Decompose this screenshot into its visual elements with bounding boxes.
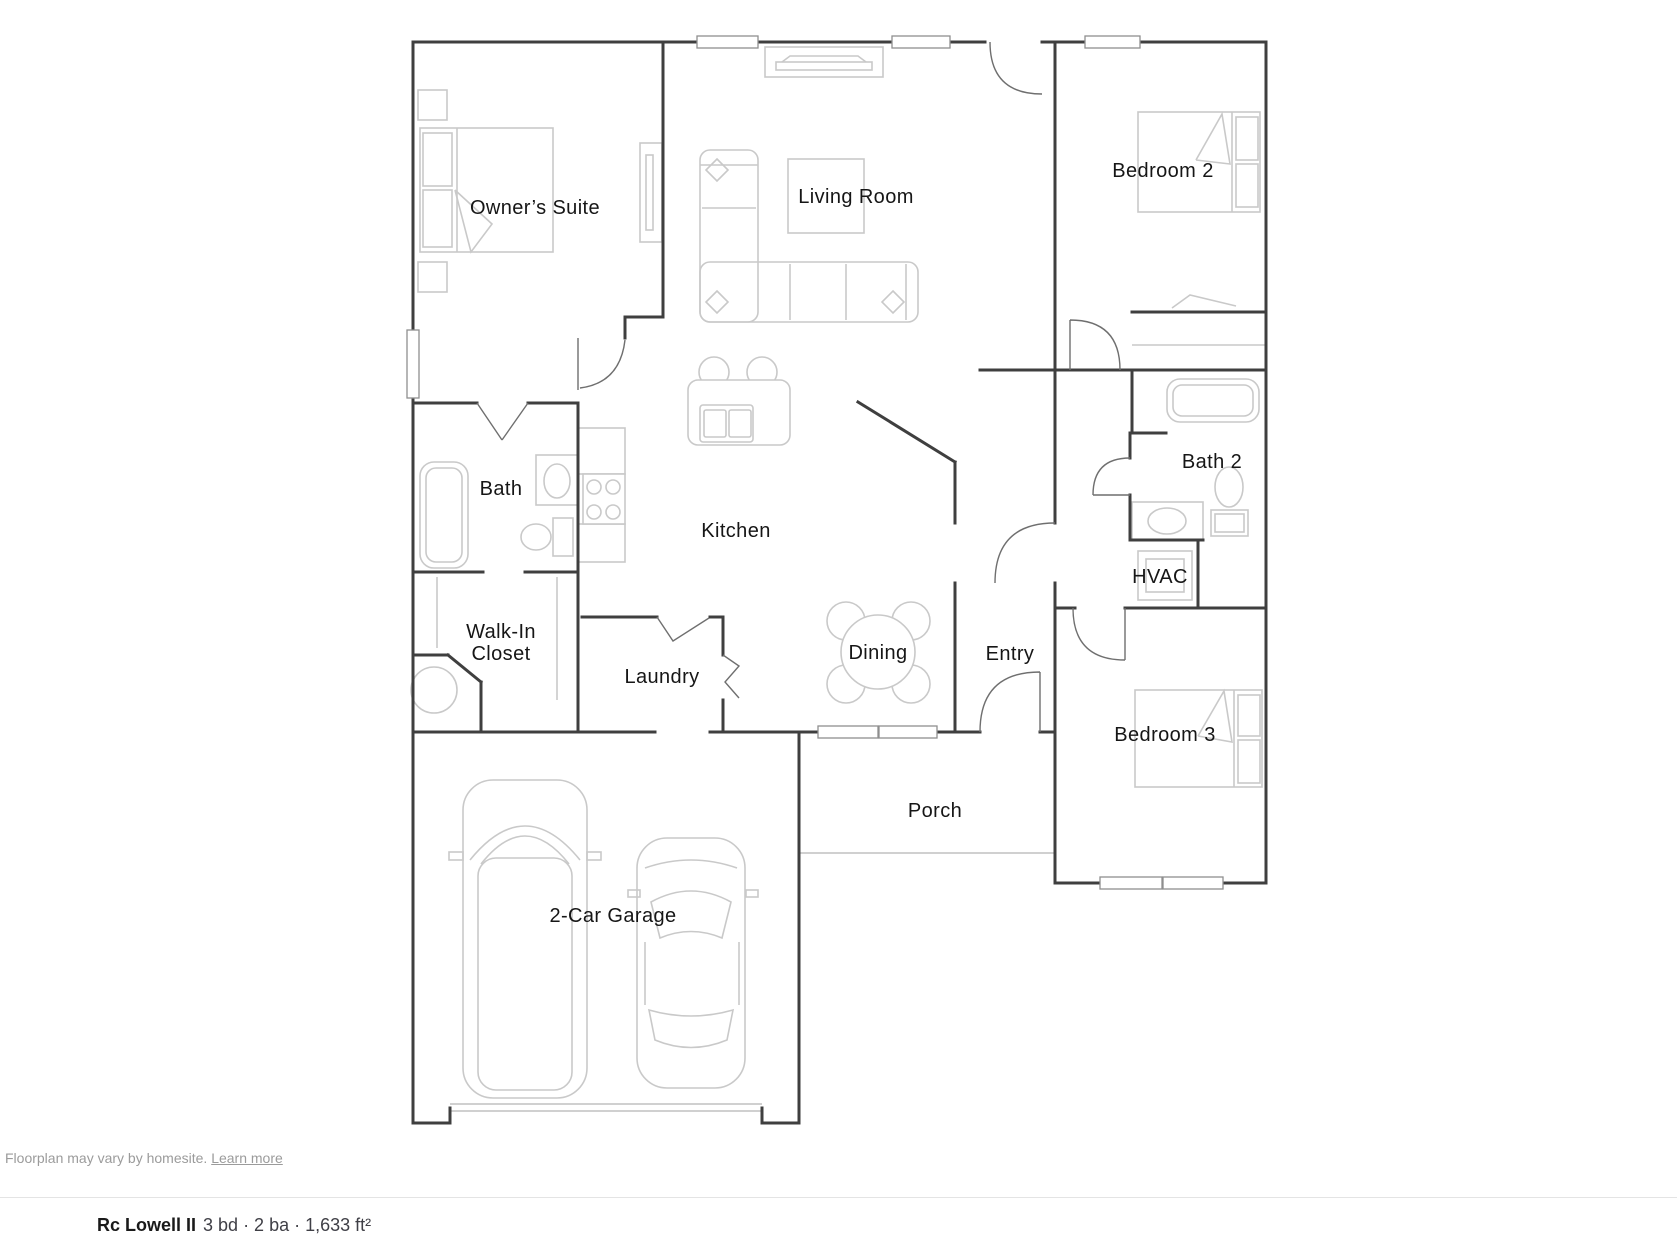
dresser bbox=[640, 143, 662, 242]
plan-details: 3 bd · 2 ba · 1,633 ft² bbox=[203, 1215, 371, 1236]
front-door bbox=[980, 672, 1040, 732]
toilet2 bbox=[1211, 467, 1248, 536]
bedroom2-door bbox=[1070, 320, 1120, 370]
garage-door bbox=[450, 1104, 762, 1111]
bath2-door bbox=[1093, 458, 1130, 495]
laundry-bifold-door bbox=[657, 617, 709, 641]
window bbox=[697, 36, 758, 48]
floorplan-page: Owner’s Suite Living Room Bedroom 2 Bath… bbox=[0, 0, 1677, 1251]
window bbox=[879, 726, 937, 738]
vanity-sink bbox=[411, 667, 457, 713]
room-label-kitchen: Kitchen bbox=[701, 520, 771, 542]
light-lines bbox=[450, 853, 1055, 1111]
bath-door bbox=[477, 403, 528, 440]
bath2-sink bbox=[1132, 502, 1203, 540]
sectional-sofa bbox=[700, 150, 918, 322]
window bbox=[1085, 36, 1140, 48]
window bbox=[1163, 877, 1223, 889]
closet-rod-mark bbox=[1172, 295, 1236, 308]
room-label-dining: Dining bbox=[848, 642, 907, 664]
tv-console bbox=[765, 47, 883, 77]
window bbox=[818, 726, 878, 738]
laundry-pocket-door bbox=[723, 655, 739, 698]
plan-summary-bar: Rc Lowell II 3 bd · 2 ba · 1,633 ft² bbox=[0, 1197, 1677, 1251]
toilet bbox=[521, 518, 573, 556]
room-label-owners-suite: Owner’s Suite bbox=[470, 197, 600, 219]
room-label-entry: Entry bbox=[986, 643, 1035, 665]
hall-door bbox=[995, 523, 1055, 583]
floorplan-disclaimer: Floorplan may vary by homesite. Learn mo… bbox=[5, 1150, 283, 1166]
sedan-car bbox=[628, 838, 758, 1088]
bathtub2 bbox=[1167, 379, 1259, 422]
room-label-bath: Bath bbox=[480, 478, 523, 500]
room-label-bath2: Bath 2 bbox=[1182, 451, 1242, 473]
kitchen-counter bbox=[578, 428, 625, 474]
kitchen-counter bbox=[578, 524, 625, 562]
room-label-walk-in-line1: Walk-In bbox=[466, 621, 536, 643]
side-door-arc bbox=[990, 42, 1042, 94]
room-label-laundry: Laundry bbox=[624, 666, 699, 688]
stove bbox=[583, 474, 625, 524]
plan-name: Rc Lowell II bbox=[97, 1215, 196, 1236]
bedroom3-door bbox=[1073, 608, 1125, 660]
window bbox=[892, 36, 950, 48]
room-label-walk-in-line2: Closet bbox=[471, 643, 530, 665]
kitchen-island bbox=[688, 380, 790, 445]
room-label-bedroom2: Bedroom 2 bbox=[1112, 160, 1213, 182]
windows bbox=[407, 36, 1223, 889]
window bbox=[1100, 877, 1162, 889]
room-label-bedroom3: Bedroom 3 bbox=[1114, 724, 1215, 746]
suv-car bbox=[449, 780, 601, 1098]
room-label-living-room: Living Room bbox=[798, 186, 914, 208]
room-label-porch: Porch bbox=[908, 800, 962, 822]
bath-sink bbox=[536, 455, 578, 505]
nightstand bbox=[418, 90, 447, 120]
owner-suite-door bbox=[578, 338, 625, 390]
room-label-garage: 2-Car Garage bbox=[549, 905, 676, 927]
disclaimer-text: Floorplan may vary by homesite. bbox=[5, 1150, 207, 1166]
room-labels: Owner’s Suite Living Room Bedroom 2 Bath… bbox=[466, 160, 1242, 927]
window bbox=[407, 330, 419, 398]
nightstand bbox=[418, 262, 447, 292]
learn-more-link[interactable]: Learn more bbox=[211, 1150, 283, 1166]
owner-bed bbox=[420, 128, 553, 252]
floorplan-canvas: Owner’s Suite Living Room Bedroom 2 Bath… bbox=[0, 0, 1677, 1145]
room-label-hvac: HVAC bbox=[1132, 566, 1188, 588]
doors bbox=[477, 42, 1130, 732]
bathtub bbox=[420, 462, 468, 568]
